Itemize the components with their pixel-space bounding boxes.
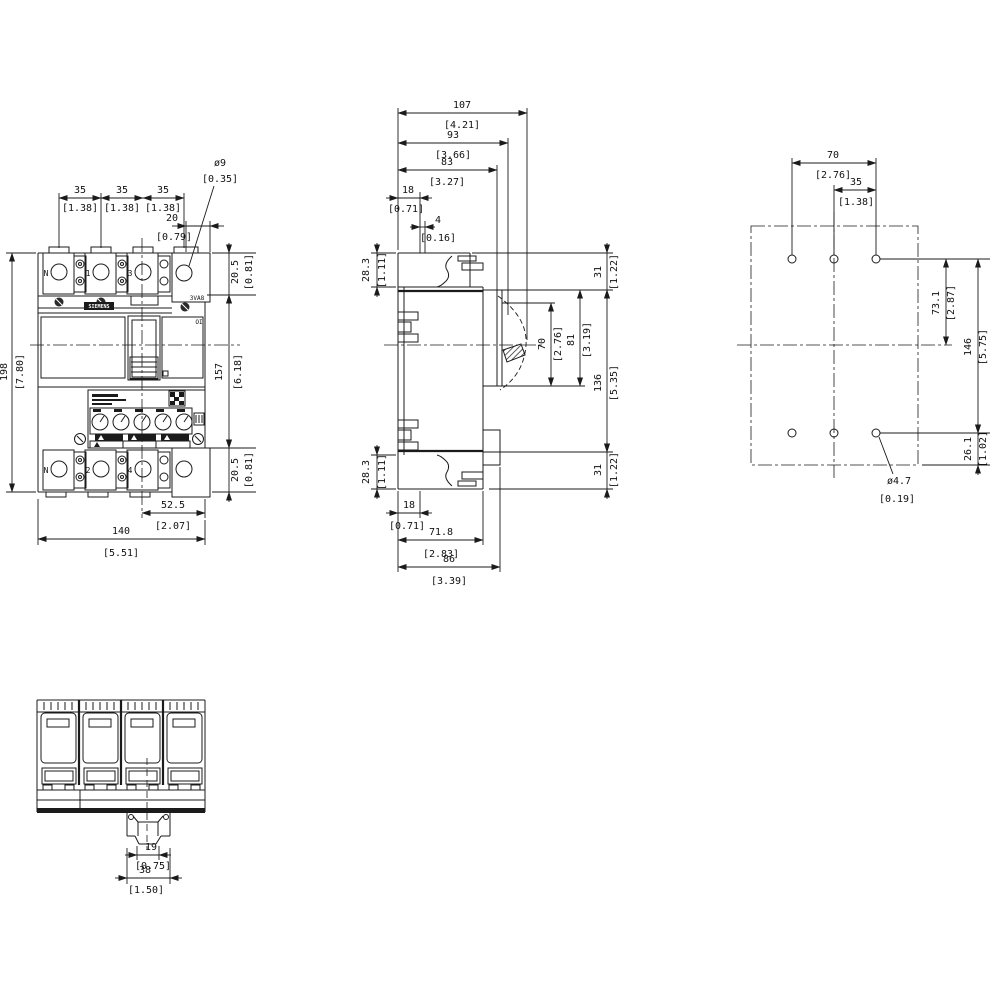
dim-hole-to-edge-mm: 26.1 [963,437,974,461]
dim-offset-18-top-in: [0.71] [388,204,424,215]
terminal-hole [135,461,151,477]
dim-terminal-height-top-mm: 20.5 [230,260,241,284]
dim-pitch1-mm: 35 [74,185,86,196]
dim-total-height-mm: 198 [0,363,10,381]
dim-body-height-in: [6.18] [233,354,244,390]
side-view: 107 [4.21] 93 [3.66] 83 [3.27] 18 [0.71]… [361,100,620,587]
dim-clip-38-mm: 38 [139,865,151,876]
qr-code-icon [169,391,185,406]
terminal-label-bottom-4: 4 [128,466,133,475]
toggle-handle-side [503,344,525,362]
handle-escutcheon [483,290,502,386]
dim-total-width-in: [5.51] [103,548,139,559]
dim-lug-depth-bottom-in: [1.11] [377,454,388,490]
dim-edge-31-bottom-in: [1.22] [609,452,620,488]
dim-handle-window-70-mm: 70 [537,338,548,350]
terminal-hole [176,461,192,477]
dim-depth-86-in: [3.39] [431,576,467,587]
dim-depth-83-in: [3.27] [429,177,465,188]
dim-center-to-edge-mm: 52.5 [161,500,185,511]
dim-pitch1-in: [1.38] [62,203,98,214]
terminal-label-top-1: 1 [86,269,91,278]
dim-clip-38-in: [1.50] [128,885,164,896]
dim-depth-86-mm: 86 [443,554,455,565]
dim-mount-hole-dia-in: [0.19] [879,494,915,505]
pole-module [41,713,76,790]
dim-terminal-height-bottom-mm: 20.5 [230,458,241,482]
dim-edge-31-top-mm: 31 [593,266,604,278]
dim-hole-span-35-in: [1.38] [838,197,874,208]
switch-marking-label: OI [195,319,203,326]
dim-total-width-mm: 140 [112,526,130,537]
dim-offset-4-in: [0.16] [420,233,456,244]
pole-module [167,713,202,790]
dim-terminal-height-bottom-in: [0.81] [244,452,255,488]
dim-hole-to-edge-in: [1.02] [978,431,989,467]
dim-front-height-136-mm: 136 [593,374,604,392]
pole-module [125,713,160,790]
dim-offset-4-mm: 4 [435,215,441,226]
terminal-label-top-3: 3 [128,269,133,278]
dim-offset-18-top-mm: 18 [402,185,414,196]
dimension-drawing-canvas: N 1 3 SIEMENS 3VA8 OI [0,0,1000,1000]
indicator-window [131,296,158,305]
terminal-hole [135,264,151,280]
dim-handle-window-81-mm: 81 [566,334,577,346]
lower-terminal-cover [483,430,500,465]
mounting-hole [872,255,880,263]
terminal-hole [51,264,67,280]
dim-hole-rows-146-in: [5.75] [978,329,989,365]
dim-handle-window-81-in: [3.19] [582,322,593,358]
mounting-hole [872,429,880,437]
dim-edge-31-bottom-mm: 31 [593,464,604,476]
rating-plate [88,390,205,448]
dim-hole-span-70-in: [2.76] [815,170,851,181]
brand-label: SIEMENS [88,304,109,310]
bottom-dimensions: 19 [0.75] 38 [1.50] [115,842,182,896]
dim-terminal-width-in: [0.79] [156,232,192,243]
dim-pitch3-mm: 35 [157,185,169,196]
dim-offset-18-bottom-in: [0.71] [389,521,425,532]
warning-triangle-icon [94,442,100,447]
dim-terminal-hole-dia-mm: ø9 [214,158,226,169]
dim-hole-to-center-mm: 73.1 [931,291,942,315]
terminal-label-bottom-2: 2 [86,466,91,475]
dim-hole-to-center-in: [2.87] [946,285,957,321]
terminal-label-top-n: N [44,269,49,278]
dim-center-to-edge-in: [2.07] [155,521,191,532]
dim-terminal-width-mm: 20 [166,213,178,224]
dim-hole-span-70-mm: 70 [827,150,839,161]
front-body: N 1 3 SIEMENS 3VA8 OI [38,247,210,497]
side-body [398,253,526,489]
dim-offset-18-bottom-mm: 18 [403,500,415,511]
dim-pitch2-mm: 35 [116,185,128,196]
dim-clip-19-mm: 19 [145,842,157,853]
rear-drilling-view: 70 [2.76] 35 [1.38] 73.1 [2.87] 146 [5.7… [737,150,990,505]
dim-lug-depth-top-mm: 28.3 [361,258,372,282]
front-view: N 1 3 SIEMENS 3VA8 OI [0,158,256,559]
bottom-view: 19 [0.75] 38 [1.50] [37,700,205,896]
dim-depth-case-mm: 71.8 [429,527,453,538]
side-dimensions: 107 [4.21] 93 [3.66] 83 [3.27] 18 [0.71]… [361,100,620,587]
dim-mount-hole-dia-mm: ø4.7 [887,476,911,487]
dim-hole-span-35-mm: 35 [850,177,862,188]
face-panel-left [41,317,125,378]
dimension-drawing: N 1 3 SIEMENS 3VA8 OI [0,0,1000,1000]
terminal-hole [93,264,109,280]
dim-pitch2-in: [1.38] [104,203,140,214]
test-connector-icon [194,413,204,425]
model-label: 3VA8 [190,295,205,302]
rear-dimensions: 70 [2.76] 35 [1.38] 73.1 [2.87] 146 [5.7… [792,150,990,505]
terminal-hole [176,265,192,281]
dim-depth-max-mm: 107 [453,100,471,111]
dim-edge-31-top-in: [1.22] [609,254,620,290]
terminal-hole [51,461,67,477]
terminal-hole [93,461,109,477]
mounting-hole [788,255,796,263]
dim-terminal-height-top-in: [0.81] [244,254,255,290]
dim-terminal-hole-dia-in: [0.35] [202,174,238,185]
face-panel-right [162,317,203,378]
dim-lug-depth-top-in: [1.11] [377,252,388,288]
dim-front-height-136-in: [5.35] [609,365,620,401]
dim-lug-depth-bottom-mm: 28.3 [361,460,372,484]
mounting-hole [788,429,796,437]
terminal-label-bottom-n: N [44,466,49,475]
dim-body-height-mm: 157 [214,363,225,381]
dim-handle-window-70-in: [2.76] [553,326,564,362]
dim-depth-83-mm: 83 [441,157,453,168]
dim-total-height-in: [7.80] [15,354,26,390]
pole-module [83,713,118,790]
dim-hole-rows-146-mm: 146 [963,338,974,356]
bottom-body [37,700,205,850]
dim-depth-93-mm: 93 [447,130,459,141]
